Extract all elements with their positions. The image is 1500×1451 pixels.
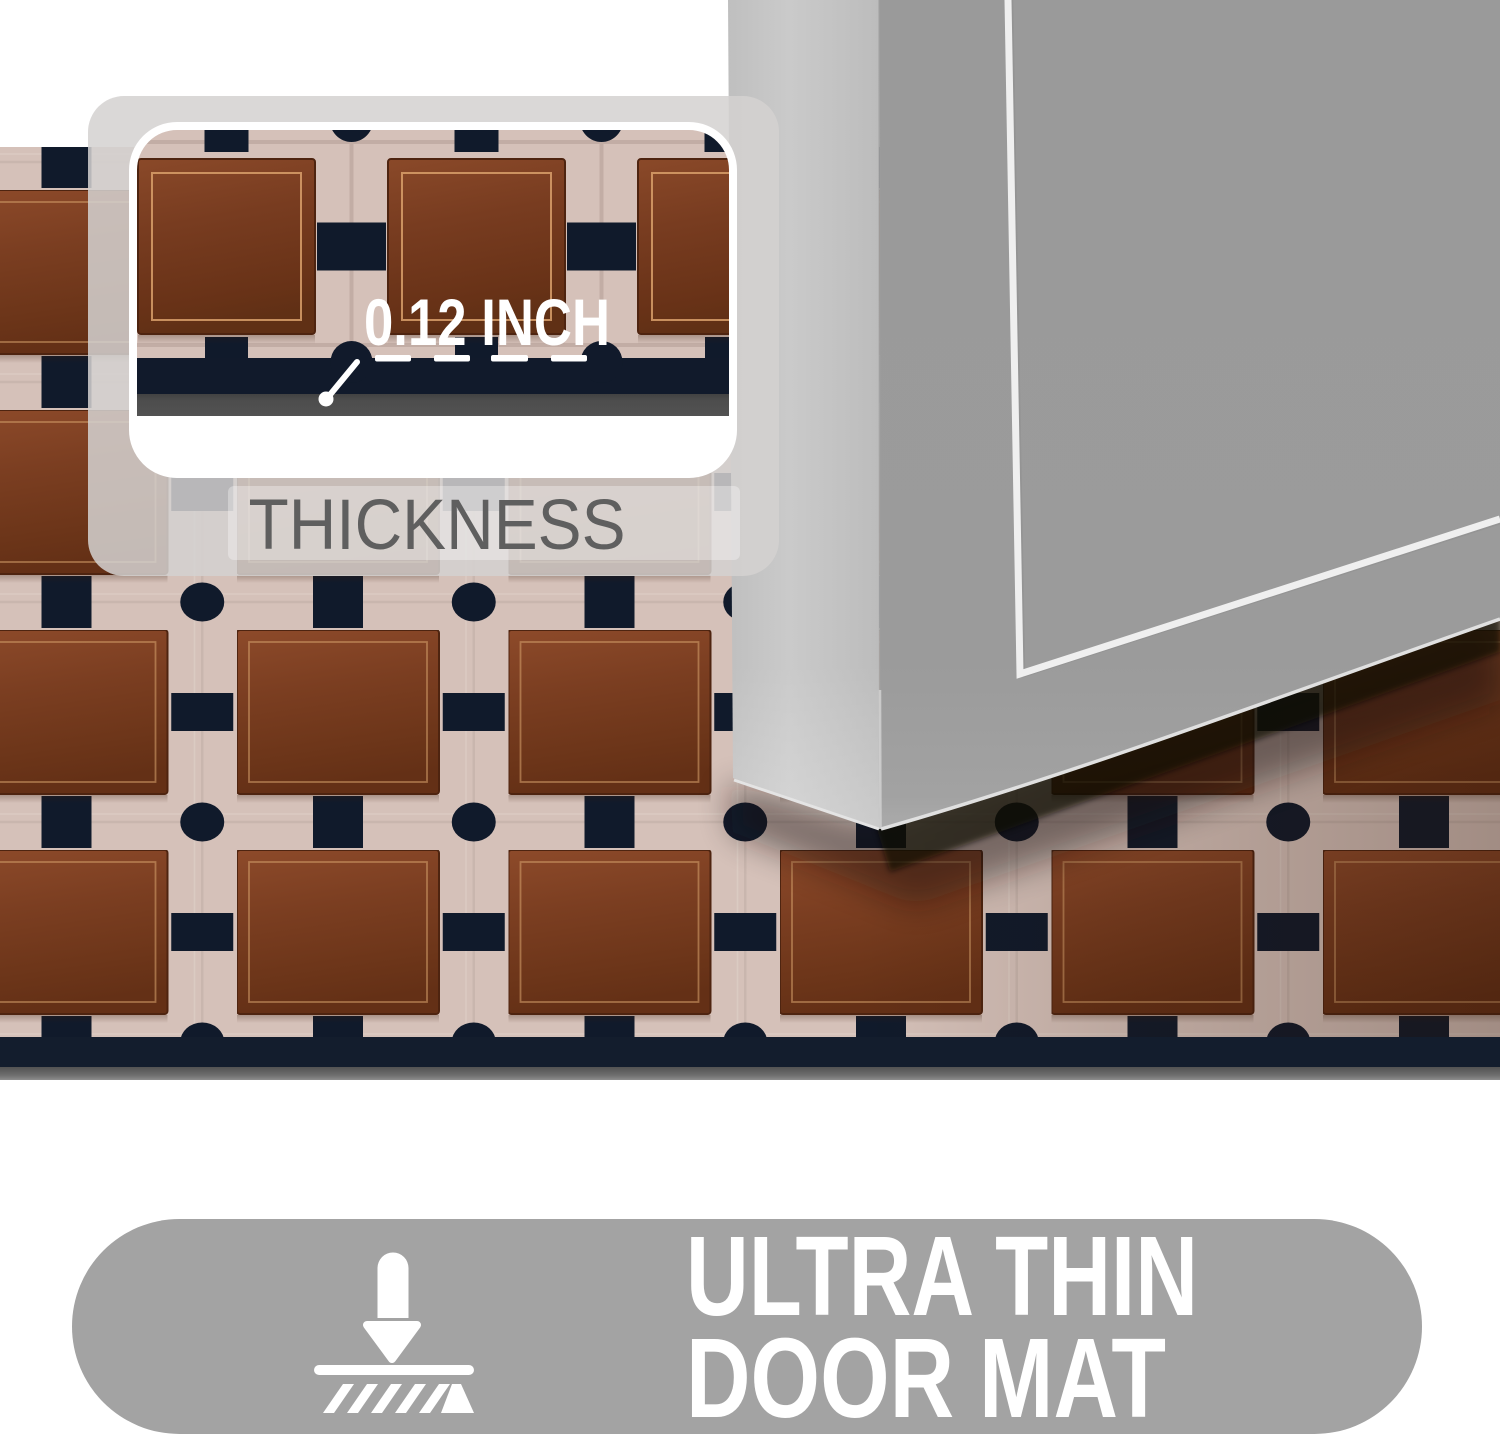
svg-text:THICKNESS: THICKNESS (249, 486, 626, 565)
svg-text:0.12 INCH: 0.12 INCH (364, 285, 610, 359)
svg-text:DOOR MAT: DOOR MAT (686, 1315, 1166, 1441)
